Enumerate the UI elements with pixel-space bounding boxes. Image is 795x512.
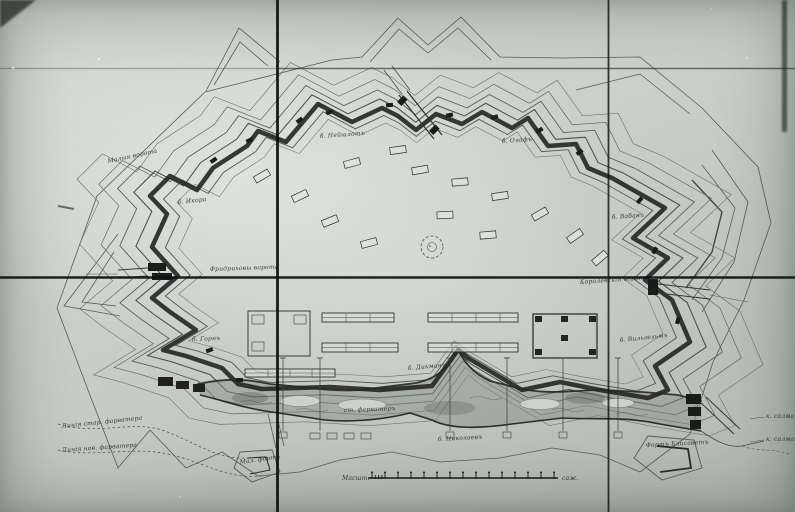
label-bastion-n-left: б. Нейшлотъ [320, 130, 366, 140]
center-well [421, 236, 443, 258]
interior-buildings [245, 145, 608, 377]
label-strait-upper: к. салма [766, 413, 795, 420]
label-gate-west: Фридриховы ворота [210, 264, 279, 273]
fort-southeast-walls [657, 446, 691, 472]
outwork-top-left [206, 28, 280, 91]
dust-specks [12, 8, 748, 498]
courtyard-building-east [533, 314, 597, 358]
label-leader [750, 417, 764, 419]
label-gate-east: Королевскія ворота [579, 274, 649, 286]
shoal [280, 396, 320, 407]
outwork-left [64, 234, 120, 316]
outwork-right [692, 150, 748, 312]
shoal [520, 399, 560, 410]
fairway-new-curve [58, 450, 262, 477]
east-gate-bridge [648, 279, 748, 302]
label-bastion-n-right: б. Олафъ [502, 136, 533, 145]
spur-canal [268, 412, 284, 448]
label-bastion-se: б. Вильгельмъ [619, 332, 668, 344]
label-bastion-ne: б. Вабанъ [612, 212, 645, 221]
scale-label-right: саж. [562, 475, 578, 482]
archival-photo-fortress-plan: Масшт. саж. Малыя ворота б. Икора б. Ней… [0, 0, 795, 512]
corner-shadow-top-left [0, 0, 36, 28]
ink-smudge [58, 206, 74, 209]
channel-tail [701, 431, 764, 446]
outwork-top-center [370, 28, 491, 62]
shore-line [742, 446, 789, 454]
powder-magazines [253, 145, 608, 265]
deep-water [565, 392, 605, 404]
label-fort-small-south: Мал. фортъ [238, 453, 281, 466]
scale-label-left: Масшт. [341, 475, 370, 482]
label-outwork-south: б. Николаевъ [438, 434, 483, 443]
mill-blocks [158, 377, 205, 392]
courtyard-building-west [248, 311, 310, 356]
scale-bar: Масшт. саж. [341, 472, 578, 483]
label-bastion-sw: б. Горнъ [192, 335, 221, 343]
label-fairway-old: Линія стар. фарватера [60, 415, 142, 431]
label-strait-lower: к. салма [766, 436, 795, 443]
ink-layer: Масшт. саж. Малыя ворота б. Икора б. Ней… [57, 17, 795, 482]
fortress-plan-drawing: Масшт. саж. Малыя ворота б. Икора б. Ней… [0, 0, 795, 512]
sluice-bridge [700, 397, 740, 434]
outwork-top-right [576, 74, 690, 114]
edge-shadow-top-right [782, 0, 787, 132]
outwork-right-ravelin [686, 180, 722, 288]
fold-lines [0, 0, 795, 512]
scale-tick-heads [371, 472, 555, 474]
deep-water [232, 392, 268, 404]
label-fairway-new: Линія нов. фарватера [61, 442, 138, 454]
